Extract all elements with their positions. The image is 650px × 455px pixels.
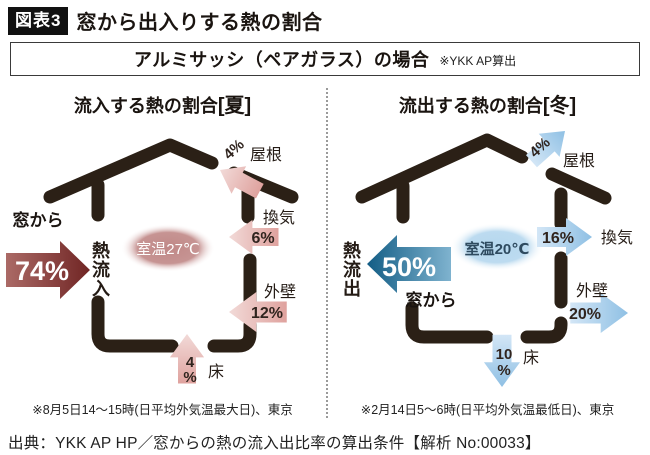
vent-percent: 16%: [542, 230, 574, 247]
left-wall-floor: [98, 302, 172, 346]
case-note: ※YKK AP算出: [439, 49, 516, 69]
roof-left-slope: [362, 140, 522, 197]
case-box: アルミサッシ（ペアガラス）の場合 ※YKK AP算出: [10, 42, 640, 76]
heat-flow-char-1: 熱: [343, 240, 361, 261]
wall-label: 外壁: [264, 282, 296, 301]
heat-flow-char-3: 入: [92, 279, 110, 299]
summer-note: ※8月5日14～15時(日平均外気温最大日)、東京: [0, 399, 325, 418]
wall-label: 外壁: [576, 281, 608, 300]
window-percent: 50%: [382, 252, 436, 282]
panel-divider: [326, 88, 328, 418]
window-percent: 74%: [15, 256, 69, 286]
vent-percent: 6%: [251, 230, 274, 247]
roof-label: 屋根: [563, 152, 595, 170]
wall-percent: 12%: [251, 305, 283, 322]
heat-flow-char-1: 熱: [92, 240, 110, 261]
window-label: 窓から: [406, 290, 457, 310]
room-temp-label: 室温27℃: [136, 241, 200, 258]
vent-label: 換気: [263, 209, 295, 227]
winter-house-diagram: 4% 屋根 16% 換気 外壁 20% 10 % 床 50% 窓から 熱 流 出…: [325, 104, 650, 396]
heat-flow-char-2: 流: [92, 259, 110, 280]
case-title: アルミサッシ（ペアガラス）の場合: [134, 46, 429, 72]
vent-label: 換気: [601, 229, 633, 247]
window-label: 窓から: [13, 210, 64, 230]
floor-right-corner: [527, 323, 561, 337]
source-line: 出典：YKK AP HP／窓からの熱の流入出比率の算出条件【解析 No:0003…: [8, 431, 541, 453]
room-temp-label: 室温20℃: [465, 240, 530, 258]
floor-percent-sign: %: [183, 369, 196, 386]
winter-note: ※2月14日5～6時(日平均外気温最低日)、東京: [325, 399, 650, 418]
wall-percent: 20%: [569, 306, 601, 323]
heat-flow-char-3: 出: [343, 278, 361, 299]
floor-right-corner: [214, 325, 250, 346]
floor-label: 床: [523, 349, 539, 367]
left-wall-floor: [412, 308, 487, 337]
summer-house-diagram: 4% 屋根 換気 6% 外壁 12% 4 % 床 窓から 74% 熱 流 入 室…: [0, 104, 325, 396]
roof-percent: 4%: [220, 136, 247, 163]
figure-title: 窓から出入りする熱の割合: [76, 6, 322, 35]
floor-percent-sign: %: [497, 362, 510, 379]
floor-label: 床: [208, 363, 224, 381]
figure: 図表3 窓から出入りする熱の割合 アルミサッシ（ペアガラス）の場合 ※YKK A…: [0, 0, 650, 455]
floor-percent-num: 10: [496, 346, 513, 363]
header: 図表3 窓から出入りする熱の割合: [8, 6, 322, 35]
roof-label: 屋根: [250, 146, 282, 164]
roof-left-slope: [50, 145, 212, 197]
figure-badge: 図表3: [8, 7, 68, 35]
heat-flow-char-2: 流: [343, 259, 361, 280]
